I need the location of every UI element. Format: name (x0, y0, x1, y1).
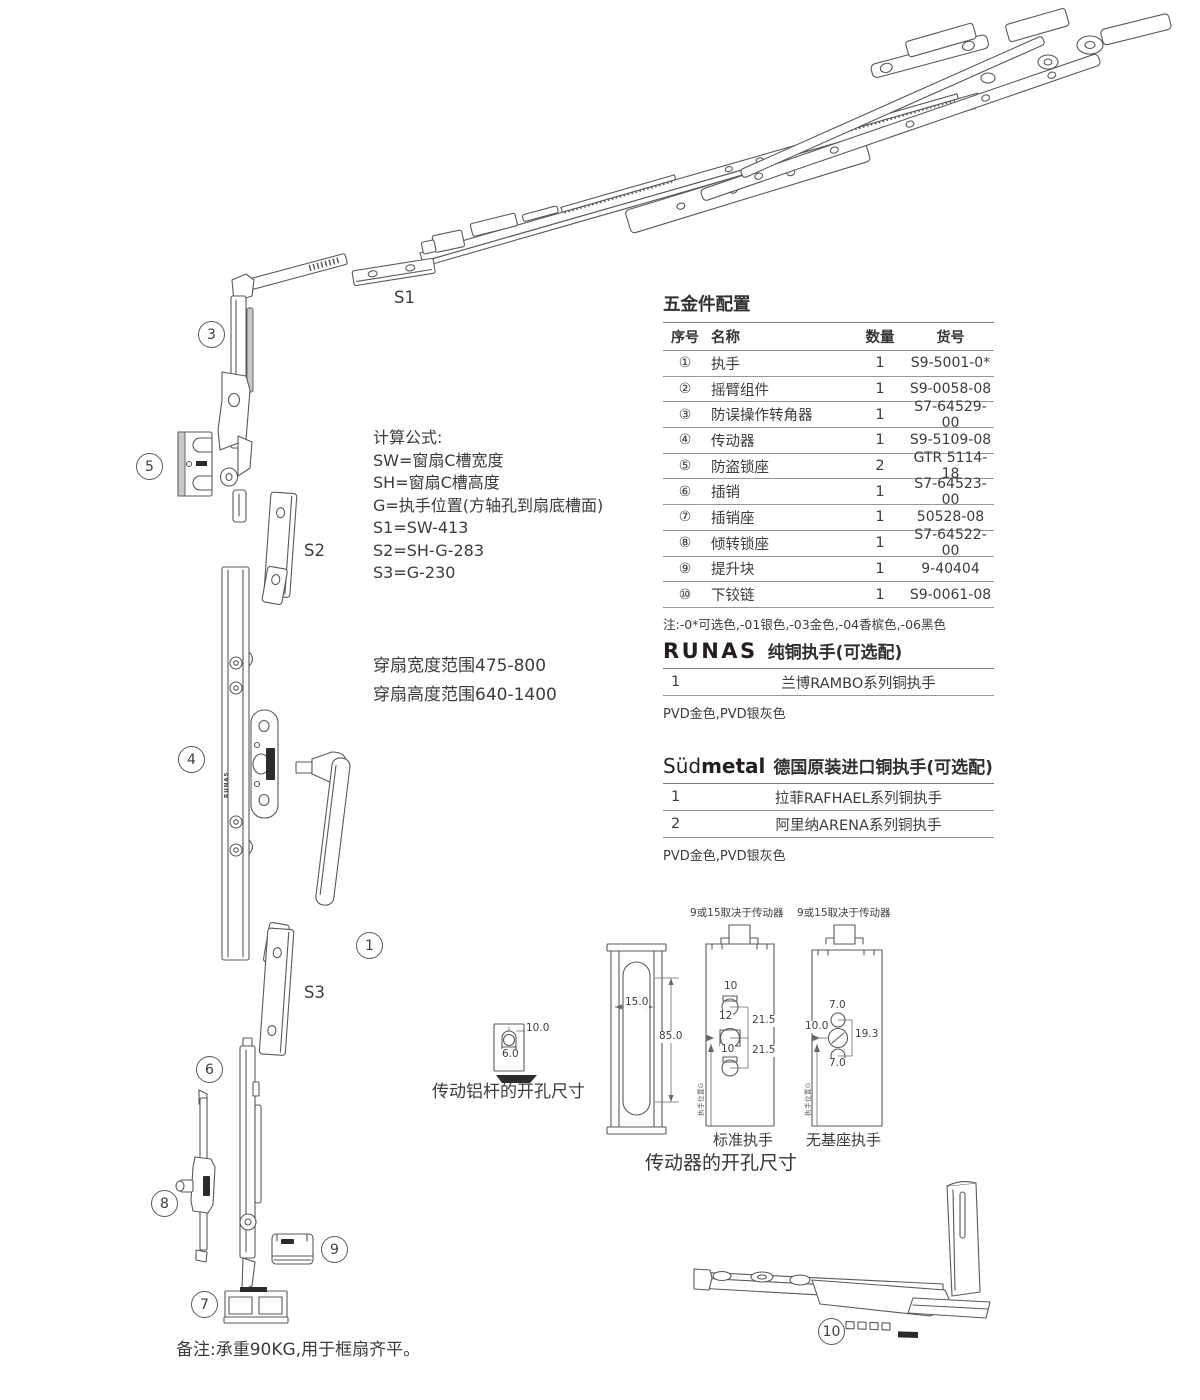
row-qty: 1 (853, 381, 907, 397)
callout-6-number: 6 (205, 1062, 214, 1078)
option-row: 2 阿里纳ARENA系列铜执手 (663, 811, 994, 838)
callout-5: 5 (136, 453, 163, 480)
row-no: ⑥ (663, 484, 707, 500)
s3-bar-drawing (259, 928, 294, 1056)
runas-finishes-note: PVD金色,PVD银灰色 (663, 703, 994, 722)
col-header-no: 序号 (663, 327, 707, 347)
formula-block: 计算公式: SW=窗扇C槽宽度 SH=窗扇C槽高度 G=执手位置(方轴孔到扇底槽… (373, 427, 603, 585)
no-base-handle-top-note: 9或15取决于传动器 (797, 905, 891, 920)
row-no: ⑧ (663, 535, 707, 551)
callout-3: 3 (198, 321, 225, 348)
row-no: ③ (663, 407, 707, 423)
sudmetal-option-title: 德国原装进口铜执手(可选配) (773, 753, 993, 778)
table-row: ③防误操作转角器1S7-64529-00 (663, 402, 994, 428)
dim-label: 21.5 (751, 1045, 776, 1057)
runas-brand: RUNAS (663, 639, 758, 663)
sash-height-range: 穿扇高度范围640-1400 (373, 681, 557, 710)
dim-label: 15.0 (624, 997, 649, 1009)
callout-4-number: 4 (187, 752, 196, 768)
dim-label: 10.0 (525, 1023, 550, 1035)
row-code: 9-40404 (907, 561, 994, 577)
formula-line: G=执手位置(方轴孔到扇底槽面) (373, 495, 603, 518)
row-name: 防盗锁座 (707, 456, 853, 477)
row-no: ① (663, 355, 707, 371)
table-row: ⑥插销1S7-64523-00 (663, 479, 994, 505)
formula-line: SH=窗扇C槽高度 (373, 472, 603, 495)
table-row: ⑩下铰链1S9-0061-08 (663, 582, 994, 608)
row-qty: 1 (853, 509, 907, 525)
callout-1: 1 (356, 932, 383, 959)
option-row-no: 1 (663, 674, 723, 690)
row-name: 倾转锁座 (707, 533, 853, 554)
dim-label: 10 (720, 1044, 735, 1056)
bolt-rod-drawing (240, 1038, 261, 1290)
s2-label: S2 (304, 541, 325, 560)
runas-option-title: 纯铜执手(可选配) (768, 638, 903, 663)
option-row-name: 兰博RAMBO系列铜执手 (723, 672, 994, 693)
sash-range-block: 穿扇宽度范围475-800 穿扇高度范围640-1400 (373, 652, 557, 710)
sudmetal-brand-bold: metal (701, 754, 765, 778)
hardware-config-table: 五金件配置 序号 名称 数量 货号 ①执手1S9-5001-0* ②摇臂组件1S… (663, 291, 994, 633)
formula-line: S2=SH-G-283 (373, 540, 603, 563)
catalog-page: 3 5 4 1 6 8 9 7 10 S1 S2 S3 RUNAS 计算公式: … (0, 0, 1200, 1400)
row-no: ⑦ (663, 509, 707, 525)
handle-drawing (296, 752, 351, 906)
callout-8-number: 8 (160, 1196, 169, 1212)
row-qty: 1 (853, 355, 907, 371)
table-row: ⑨提升块19-40404 (663, 557, 994, 583)
dim-label: 85.0 (658, 1031, 683, 1043)
row-qty: 1 (853, 407, 907, 423)
rocker-arm-assembly-drawing (419, 8, 1172, 267)
row-qty: 1 (853, 484, 907, 500)
table-title: 五金件配置 (663, 291, 994, 316)
callout-8: 8 (151, 1190, 178, 1217)
s1-label: S1 (394, 288, 415, 307)
table-header-row: 序号 名称 数量 货号 (663, 323, 994, 351)
row-code: S9-0061-08 (907, 587, 994, 603)
callout-1-number: 1 (365, 938, 374, 954)
footer-note: 备注:承重90KG,用于框扇齐平。 (176, 1335, 420, 1360)
row-no: ⑨ (663, 561, 707, 577)
drive-gear-bar-drawing (222, 566, 290, 965)
s3-label: S3 (304, 983, 325, 1002)
row-code: S9-5109-08 (907, 432, 994, 448)
option-row-name: 拉菲RAFHAEL系列铜执手 (723, 787, 994, 808)
dim-label: 19.3 (854, 1029, 879, 1041)
row-name: 执手 (707, 353, 853, 374)
rod-drill-caption: 传动铝杆的开孔尺寸 (432, 1077, 585, 1102)
dim-label: 21.5 (751, 1015, 776, 1027)
row-name: 传动器 (707, 430, 853, 451)
row-qty: 1 (853, 432, 907, 448)
row-qty: 2 (853, 458, 907, 474)
lift-block-drawing (272, 1234, 313, 1264)
row-code: S9-5001-0* (907, 355, 994, 371)
callout-3-number: 3 (207, 327, 216, 343)
row-code: S7-64523-00 (907, 476, 994, 508)
row-no: ⑩ (663, 587, 707, 603)
standard-axis-label: 执手位置G (695, 1082, 705, 1116)
standard-handle-caption: 标准执手 (713, 1129, 773, 1150)
col-header-name: 名称 (707, 326, 853, 347)
col-header-qty: 数量 (853, 326, 907, 347)
bar-brand-text: RUNAS (224, 771, 230, 798)
exploded-diagram (0, 0, 1200, 1400)
s1-bar-drawing (352, 258, 435, 286)
col-header-code: 货号 (907, 327, 994, 347)
sash-width-range: 穿扇宽度范围475-800 (373, 652, 557, 681)
table-row: ①执手1S9-5001-0* (663, 351, 994, 377)
row-code: 50528-08 (907, 509, 994, 525)
option-row-no: 1 (663, 789, 723, 805)
row-name: 摇臂组件 (707, 379, 853, 400)
row-code: S7-64522-00 (907, 527, 994, 559)
dim-label: 10.0 (804, 1021, 829, 1033)
table-row: ⑧倾转锁座1S7-64522-00 (663, 531, 994, 557)
sudmetal-option-table: Südmetal 德国原装进口铜执手(可选配) 1 拉菲RAFHAEL系列铜执手… (663, 753, 994, 864)
no-base-axis-label: 执手位置G (802, 1082, 812, 1116)
gearbox-drill-caption: 传动器的开孔尺寸 (645, 1148, 797, 1175)
corner-drive-drawing (218, 253, 348, 522)
bottom-hinge-drawing (694, 1182, 990, 1339)
dim-label: 10 (723, 981, 738, 993)
table-color-note: 注:-0*可选色,-01银色,-03金色,-04香槟色,-06黑色 (663, 614, 994, 633)
row-qty: 1 (853, 535, 907, 551)
formula-line: S1=SW-413 (373, 517, 603, 540)
tilt-lock-keeper-drawing (176, 1090, 215, 1262)
formula-title: 计算公式: (373, 427, 603, 450)
row-name: 插销 (707, 481, 853, 502)
standard-handle-top-note: 9或15取决于传动器 (690, 905, 784, 920)
callout-10-number: 10 (823, 1324, 841, 1340)
row-name: 防误操作转角器 (707, 404, 853, 425)
dim-label: 6.0 (501, 1049, 520, 1061)
formula-line: SW=窗扇C槽宽度 (373, 450, 603, 473)
option-row-no: 2 (663, 816, 723, 832)
callout-9-number: 9 (330, 1242, 339, 1258)
callout-7-number: 7 (200, 1297, 209, 1313)
lock-keeper-drawing (178, 432, 212, 496)
callout-5-number: 5 (145, 459, 154, 475)
formula-line: S3=G-230 (373, 562, 603, 585)
bolt-keeper-drawing (224, 1287, 288, 1323)
callout-9: 9 (321, 1236, 348, 1263)
sudmetal-brand-light: Süd (663, 754, 701, 778)
callout-6: 6 (196, 1056, 223, 1083)
callout-7: 7 (191, 1291, 218, 1318)
dim-label: 7.0 (828, 1000, 847, 1012)
row-name: 下铰链 (707, 584, 853, 605)
dim-label: 7.0 (828, 1058, 847, 1070)
callout-4: 4 (178, 746, 205, 773)
option-row: 1 兰博RAMBO系列铜执手 (663, 669, 994, 696)
row-name: 插销座 (707, 507, 853, 528)
row-code: S7-64529-00 (907, 399, 994, 431)
row-code: S9-0058-08 (907, 381, 994, 397)
callout-10: 10 (818, 1318, 845, 1345)
no-base-handle-caption: 无基座执手 (806, 1129, 881, 1150)
row-no: ⑤ (663, 458, 707, 474)
row-qty: 1 (853, 587, 907, 603)
option-row-name: 阿里纳ARENA系列铜执手 (723, 814, 994, 835)
row-no: ④ (663, 432, 707, 448)
runas-option-table: RUNAS 纯铜执手(可选配) 1 兰博RAMBO系列铜执手 PVD金色,PVD… (663, 638, 994, 722)
option-row: 1 拉菲RAFHAEL系列铜执手 (663, 784, 994, 811)
row-no: ② (663, 381, 707, 397)
dim-label: 12 (718, 1011, 733, 1023)
row-name: 提升块 (707, 558, 853, 579)
row-qty: 1 (853, 561, 907, 577)
sudmetal-finishes-note: PVD金色,PVD银灰色 (663, 845, 994, 864)
